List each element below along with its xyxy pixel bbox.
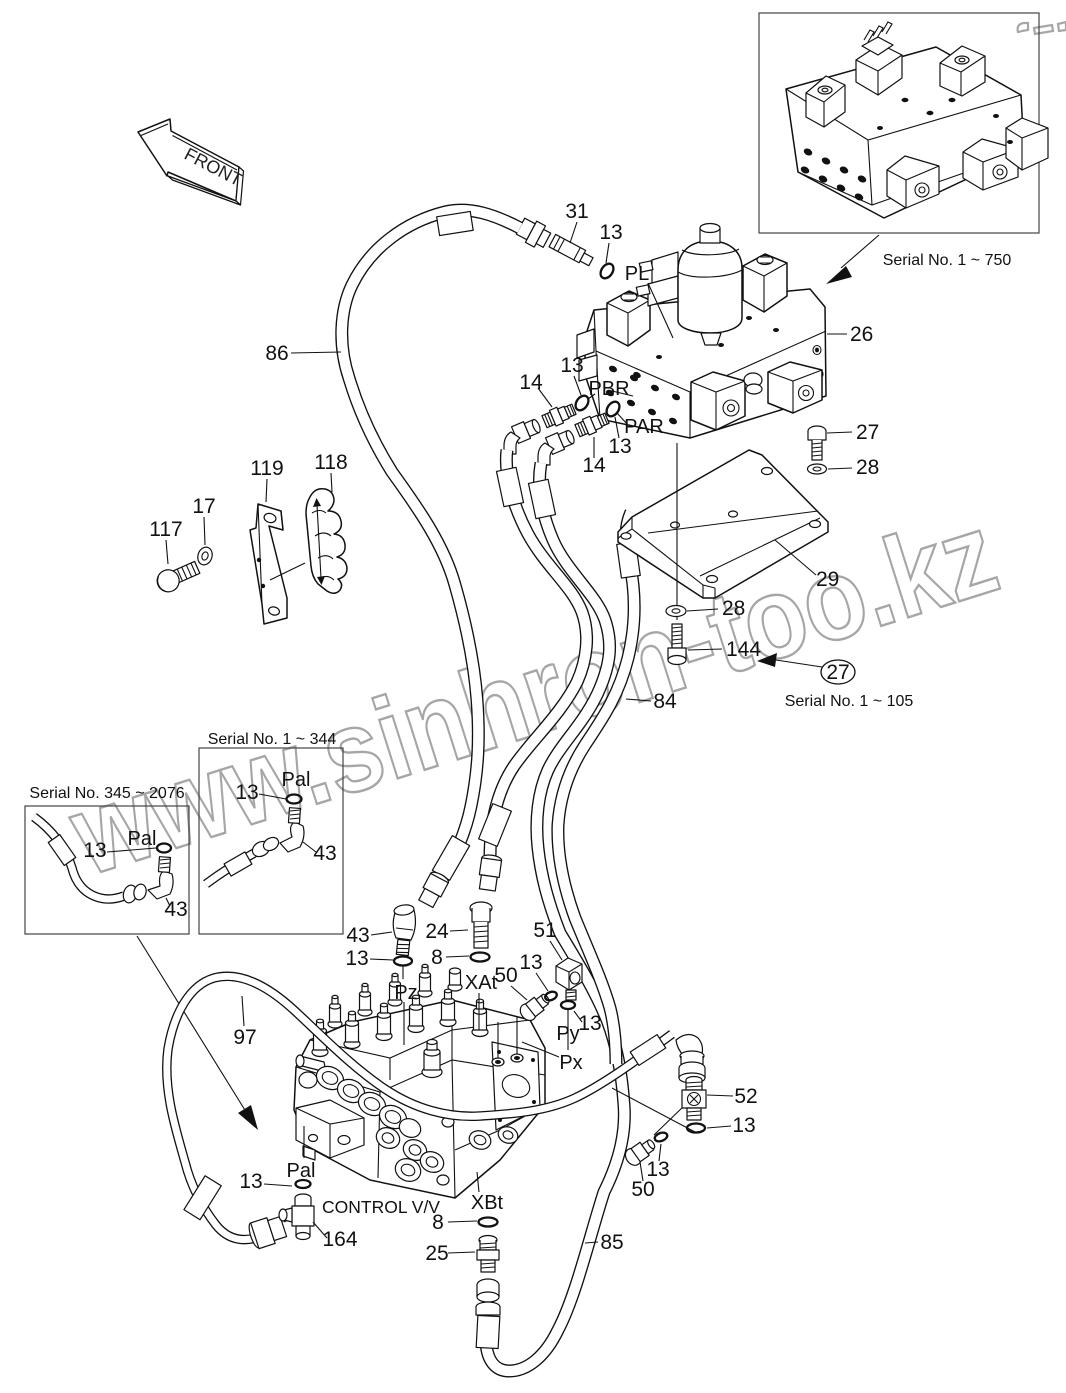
svg-text:28: 28 — [722, 597, 745, 620]
svg-text:CONTROL V/V: CONTROL V/V — [322, 1197, 440, 1217]
svg-text:52: 52 — [734, 1085, 757, 1108]
svg-text:Py: Py — [556, 1023, 579, 1045]
svg-text:27: 27 — [826, 661, 849, 684]
svg-text:Pal: Pal — [128, 828, 157, 850]
svg-text:24: 24 — [425, 920, 449, 943]
svg-text:144: 144 — [726, 638, 761, 661]
svg-text:85: 85 — [600, 1231, 623, 1254]
svg-text:XBt: XBt — [471, 1192, 504, 1214]
svg-text:26: 26 — [850, 323, 873, 346]
svg-text:84: 84 — [653, 690, 677, 713]
svg-text:Pz: Pz — [394, 982, 417, 1004]
svg-text:8: 8 — [432, 1211, 444, 1234]
svg-text:50: 50 — [494, 964, 517, 987]
svg-text:29: 29 — [816, 568, 839, 591]
svg-text:Serial No. 345 ~ 2076: Serial No. 345 ~ 2076 — [29, 785, 184, 802]
svg-text:25: 25 — [425, 1242, 448, 1265]
svg-text:13: 13 — [345, 947, 368, 970]
svg-text:27: 27 — [856, 421, 879, 444]
svg-text:31: 31 — [565, 200, 588, 223]
svg-text:119: 119 — [250, 457, 283, 480]
svg-text:28: 28 — [856, 456, 879, 479]
svg-text:117: 117 — [149, 518, 182, 541]
svg-text:Serial No. 1 ~ 344: Serial No. 1 ~ 344 — [208, 731, 337, 748]
svg-text:97: 97 — [233, 1026, 256, 1049]
svg-text:13: 13 — [599, 221, 622, 244]
svg-text:43: 43 — [313, 842, 336, 865]
svg-text:13: 13 — [235, 781, 258, 804]
svg-text:51: 51 — [533, 919, 556, 942]
svg-text:118: 118 — [314, 451, 347, 474]
svg-text:164: 164 — [322, 1228, 357, 1251]
svg-text:PL: PL — [625, 263, 649, 285]
svg-text:Pal: Pal — [287, 1160, 316, 1182]
svg-text:13: 13 — [239, 1170, 262, 1193]
svg-text:50: 50 — [631, 1178, 654, 1201]
svg-text:13: 13 — [83, 839, 106, 862]
svg-text:13: 13 — [578, 1012, 601, 1035]
svg-text:Serial No. 1 ~ 105: Serial No. 1 ~ 105 — [785, 693, 914, 710]
svg-text:43: 43 — [346, 924, 369, 947]
svg-text:XAt: XAt — [465, 972, 498, 994]
svg-text:17: 17 — [192, 495, 215, 518]
svg-text:PBR: PBR — [588, 378, 629, 400]
svg-text:8: 8 — [431, 946, 443, 969]
svg-text:13: 13 — [732, 1114, 755, 1137]
svg-text:86: 86 — [265, 342, 288, 365]
svg-text:Serial No. 1 ~ 750: Serial No. 1 ~ 750 — [883, 252, 1012, 269]
svg-text:Px: Px — [559, 1052, 582, 1074]
svg-text:Pal: Pal — [282, 769, 311, 791]
svg-text:13: 13 — [560, 354, 583, 377]
svg-text:13: 13 — [519, 951, 542, 974]
svg-text:13: 13 — [608, 435, 631, 458]
